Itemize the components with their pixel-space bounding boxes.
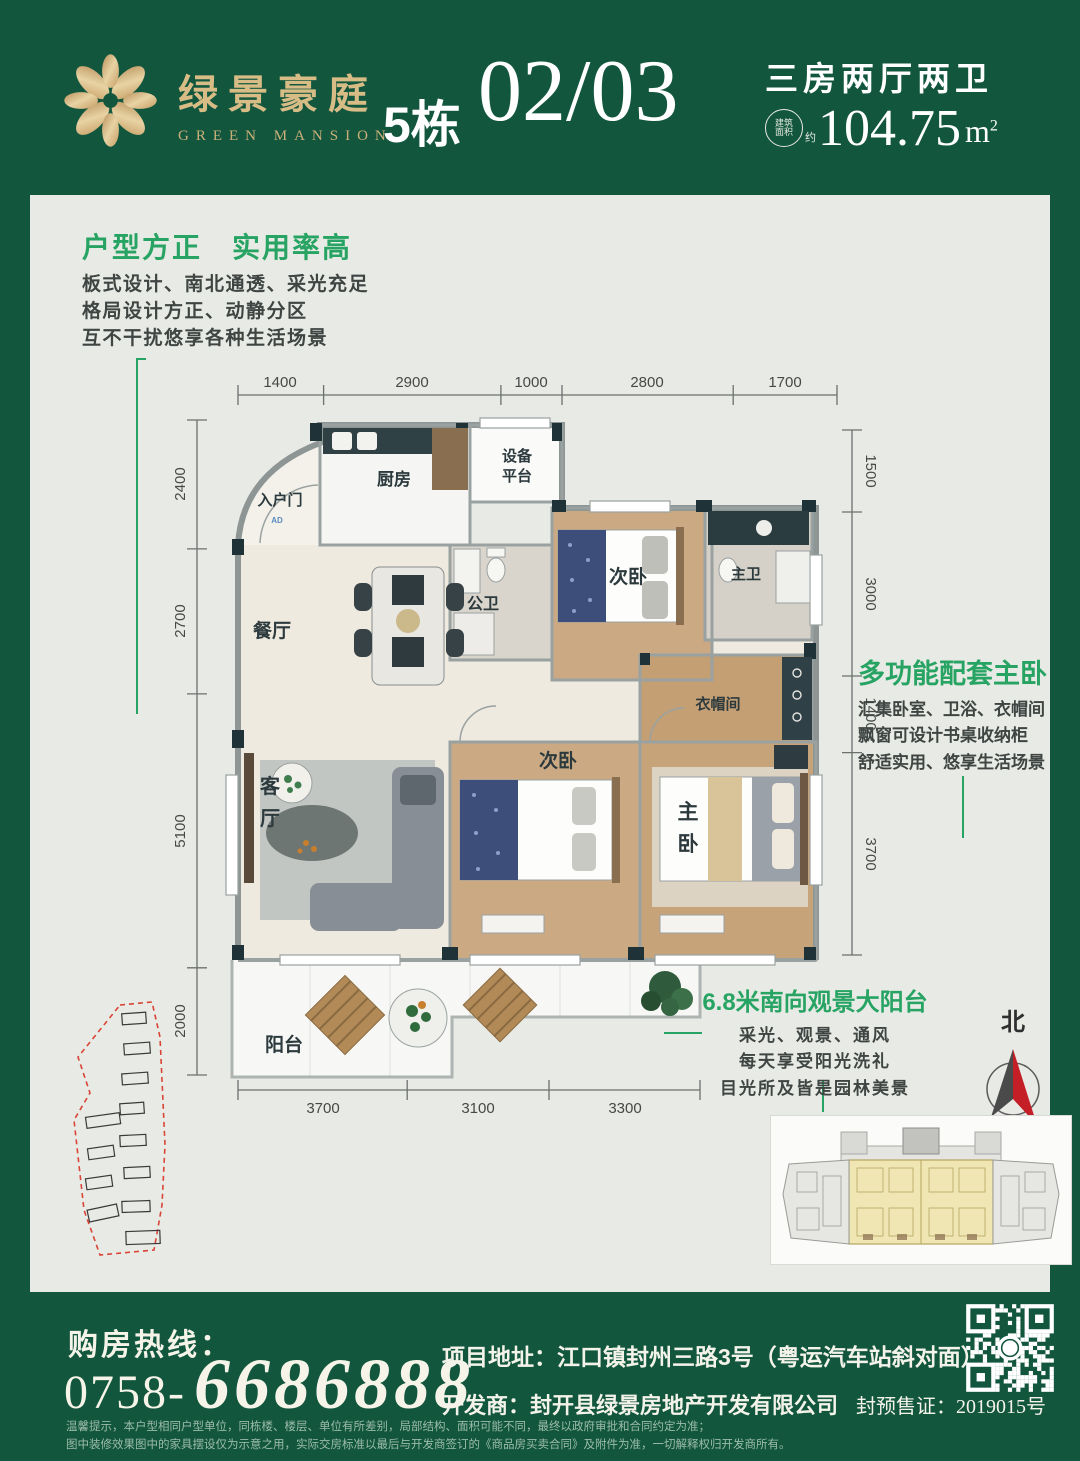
hotline-phone: 0758- 6686888 — [64, 1352, 474, 1420]
area-badge-icon: 建筑面积 — [765, 109, 803, 147]
developer-row: 开发商：封开县绿景房地产开发有限公司 封预售证：2019015号 — [442, 1388, 1046, 1420]
svg-text:次卧: 次卧 — [539, 749, 577, 772]
svg-text:阳台: 阳台 — [265, 1033, 303, 1056]
svg-text:1700: 1700 — [768, 374, 801, 391]
compass-label: 北 — [958, 1002, 1068, 1037]
master-callout-body: 汇集卧室、卫浴、衣帽间 飘窗可设计书桌收纳柜 舒适实用、悠享生活场景 — [858, 697, 1078, 776]
svg-text:1400: 1400 — [263, 374, 296, 391]
balcony-callout: 6.8米南向观景大阳台 采光、观景、通风 每天享受阳光洗礼 目光所及皆是园林美景 — [685, 982, 945, 1102]
master-callout: 多功能配套主卧 汇集卧室、卫浴、衣帽间 飘窗可设计书桌收纳柜 舒适实用、悠享生活… — [858, 652, 1078, 776]
master-callout-title: 多功能配套主卧 — [858, 652, 1078, 691]
balcony-callout-title: 6.8米南向观景大阳台 — [685, 982, 945, 1017]
svg-text:3700: 3700 — [862, 837, 879, 870]
svg-text:3000: 3000 — [862, 577, 879, 610]
balcony-callout-body: 采光、观景、通风 每天享受阳光洗礼 目光所及皆是园林美景 — [685, 1023, 945, 1102]
svg-text:2400: 2400 — [172, 467, 189, 500]
left-callout-title: 户型方正 实用率高 — [82, 226, 442, 266]
svg-text:客: 客 — [259, 774, 281, 798]
svg-text:2800: 2800 — [630, 374, 663, 391]
area-approx: 约 — [805, 129, 816, 145]
svg-text:2700: 2700 — [172, 604, 189, 637]
svg-text:衣帽间: 衣帽间 — [695, 695, 740, 713]
building-overview-card — [770, 1115, 1072, 1265]
leader-line — [136, 358, 138, 714]
svg-text:餐厅: 餐厅 — [253, 619, 291, 642]
phone-number: 6686888 — [194, 1352, 474, 1417]
svg-text:厅: 厅 — [260, 808, 280, 830]
svg-text:3100: 3100 — [461, 1100, 494, 1115]
block-label: 5栋 — [383, 85, 461, 157]
svg-text:1500: 1500 — [862, 454, 879, 487]
svg-text:3700: 3700 — [306, 1100, 339, 1115]
phone-prefix: 0758- — [64, 1365, 186, 1420]
svg-text:厨房: 厨房 — [377, 469, 411, 489]
leader-line — [136, 358, 146, 360]
developer: 开发商：封开县绿景房地产开发有限公司 — [442, 1388, 838, 1420]
svg-text:设备: 设备 — [502, 447, 533, 465]
qr-code — [962, 1300, 1058, 1396]
disclaimer: 温馨提示，本户型相同户型单位，同栋楼、楼层、单位有所差别，局部结构、面积可能不同… — [66, 1418, 946, 1455]
brand-logo-flower-icon — [58, 48, 163, 153]
header-band: 绿景豪庭 GREEN MANSION 5栋 02/03 三房两厅两卫 建筑面积 … — [0, 0, 1080, 195]
svg-text:次卧: 次卧 — [609, 565, 647, 588]
site-plan-sketch — [62, 995, 187, 1267]
svg-text:3300: 3300 — [608, 1100, 641, 1115]
brand-name-en: GREEN MANSION — [178, 128, 393, 145]
svg-text:入户门: 入户门 — [257, 491, 302, 509]
area-row: 建筑面积 约 104.75 m2 — [765, 104, 998, 153]
area-unit: m2 — [965, 109, 998, 154]
brand-name-cn: 绿景豪庭 — [178, 62, 393, 120]
project-address: 项目地址：江口镇封州三路3号（粤运汽车站斜对面） — [442, 1338, 982, 1372]
svg-text:公卫: 公卫 — [467, 595, 499, 613]
svg-text:1000: 1000 — [514, 374, 547, 391]
svg-text:5100: 5100 — [172, 814, 189, 847]
area-value: 104.75 — [818, 104, 961, 153]
leader-line — [962, 776, 964, 838]
footer-band: 购房热线： 0758- 6686888 项目地址：江口镇封州三路3号（粤运汽车站… — [0, 1292, 1080, 1461]
building-overview-illustration — [771, 1116, 1071, 1264]
layout-type: 三房两厅两卫 — [765, 52, 998, 100]
svg-text:AD: AD — [271, 516, 283, 525]
left-callout-body: 板式设计、南北通透、采光充足 格局设计方正、动静分区 互不干扰悠享各种生活场景 — [82, 272, 442, 353]
svg-text:主: 主 — [678, 801, 699, 824]
unit-number: 02/03 — [478, 48, 678, 136]
svg-text:卧: 卧 — [678, 833, 699, 856]
svg-text:2900: 2900 — [395, 374, 428, 391]
left-callout: 户型方正 实用率高 板式设计、南北通透、采光充足 格局设计方正、动静分区 互不干… — [82, 226, 442, 353]
svg-text:平台: 平台 — [502, 467, 532, 485]
svg-text:主卫: 主卫 — [731, 565, 761, 583]
